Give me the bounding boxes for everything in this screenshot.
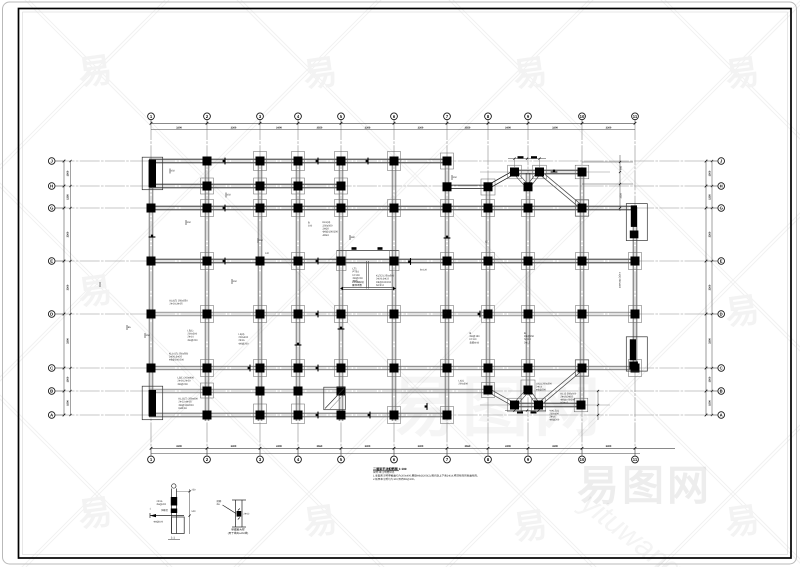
svg-text:1500: 1500	[709, 170, 712, 176]
svg-text:3300: 3300	[231, 445, 237, 448]
svg-text:1-1: 1-1	[171, 537, 175, 540]
svg-text:h50: h50	[171, 169, 176, 172]
svg-text:h80: h80	[351, 236, 356, 239]
svg-text:2400: 2400	[505, 445, 511, 448]
svg-text:3300: 3300	[365, 445, 371, 448]
svg-text:3300: 3300	[67, 284, 70, 290]
svg-text:3300: 3300	[606, 445, 612, 448]
svg-text:250: 250	[192, 489, 197, 492]
svg-text:易: 易	[723, 501, 762, 543]
svg-text:B: B	[720, 389, 723, 394]
svg-text:Ф6@200: Ф6@200	[188, 339, 199, 342]
svg-text:10: 10	[580, 457, 585, 462]
svg-text:900: 900	[620, 165, 623, 170]
svg-text:易: 易	[301, 501, 340, 543]
svg-text:A: A	[720, 413, 723, 418]
svg-text:B: B	[50, 389, 53, 394]
svg-text:1500: 1500	[620, 193, 623, 199]
svg-text:h50: h50	[146, 334, 151, 337]
svg-text:h50: h50	[227, 193, 232, 196]
svg-text:易: 易	[76, 493, 115, 535]
svg-text:11: 11	[633, 114, 638, 119]
svg-text:h50: h50	[233, 280, 238, 283]
svg-text:3300: 3300	[176, 445, 182, 448]
svg-text:N2Ф12: N2Ф12	[376, 284, 385, 287]
svg-text:加密区: 加密区	[161, 508, 169, 512]
svg-text:A: A	[50, 413, 53, 418]
svg-text:2Ф20;3Ф25: 2Ф20;3Ф25	[170, 303, 184, 306]
svg-text:(用于梁高≥450梁): (用于梁高≥450梁)	[228, 531, 249, 535]
svg-text:3300: 3300	[418, 126, 424, 129]
svg-text:1350: 1350	[709, 194, 712, 200]
svg-text:B=120: B=120	[420, 268, 428, 271]
svg-text:Ф8@100/200: Ф8@100/200	[169, 359, 184, 362]
svg-text:2400: 2400	[276, 126, 282, 129]
svg-text:2400: 2400	[276, 445, 282, 448]
svg-text:易: 易	[723, 53, 762, 95]
svg-text:Ф8@200: Ф8@200	[178, 383, 189, 386]
svg-text:Ф8@200: Ф8@200	[157, 503, 167, 506]
svg-text:L1(1) 250x400: L1(1) 250x400	[618, 272, 621, 289]
svg-text:11: 11	[633, 457, 638, 462]
svg-text:说明:未注明者详见: 说明:未注明者详见	[373, 470, 395, 474]
svg-text:C: C	[50, 366, 53, 371]
svg-text:1500: 1500	[709, 400, 712, 406]
svg-text:D: D	[50, 312, 53, 317]
svg-text:G: G	[720, 206, 723, 211]
svg-text:1350: 1350	[67, 194, 70, 200]
svg-text:2Ф12: 2Ф12	[244, 513, 250, 516]
svg-text:100: 100	[308, 225, 313, 228]
svg-text:易: 易	[723, 291, 762, 333]
svg-text:500: 500	[192, 510, 197, 513]
svg-text:3300: 3300	[709, 284, 712, 290]
svg-text:Ф8@200: Ф8@200	[239, 342, 250, 345]
svg-text:E: E	[720, 259, 723, 264]
svg-text:3300: 3300	[231, 126, 237, 129]
svg-text:h50: h50	[259, 239, 264, 242]
svg-text:2550: 2550	[465, 126, 471, 129]
svg-text:10: 10	[580, 114, 585, 119]
svg-text:1.本图未注明梁截面均为200x400,箍筋Ф8@200(2: 1.本图未注明梁截面均为200x400,箍筋Ф8@200(2),通长筋上下各2Ф…	[373, 474, 480, 478]
svg-text:2400: 2400	[505, 126, 511, 129]
svg-text:1500: 1500	[709, 376, 712, 382]
svg-text:负筋Ф10: 负筋Ф10	[470, 340, 480, 344]
svg-text:2550: 2550	[465, 445, 471, 448]
svg-text:4Ф22: 4Ф22	[323, 234, 330, 237]
svg-text:Ф6@200: Ф6@200	[536, 389, 546, 392]
svg-text:2550: 2550	[317, 445, 323, 448]
svg-text:2550: 2550	[317, 126, 323, 129]
svg-text:3300: 3300	[552, 445, 558, 448]
svg-text:120: 120	[265, 252, 270, 255]
svg-text:h50: h50	[187, 221, 192, 224]
svg-text:2.板厚未注明均为100,双向Ф8@200。: 2.板厚未注明均为100,双向Ф8@200。	[373, 477, 417, 481]
svg-text:N4Ф14: N4Ф14	[179, 407, 188, 410]
svg-text:2Ф12: 2Ф12	[524, 341, 531, 344]
svg-text:易: 易	[76, 271, 115, 313]
svg-text:3300: 3300	[365, 126, 371, 129]
svg-text:易: 易	[511, 53, 550, 95]
svg-text:3300: 3300	[709, 338, 712, 344]
svg-text:易: 易	[511, 506, 550, 548]
svg-text:3300: 3300	[67, 231, 70, 237]
svg-text:易: 易	[76, 51, 115, 93]
svg-text:3300: 3300	[552, 126, 558, 129]
svg-text:N2Ф12: N2Ф12	[561, 402, 569, 405]
svg-text:G: G	[50, 206, 53, 211]
svg-text:1500: 1500	[67, 400, 70, 406]
svg-text:1500: 1500	[67, 376, 70, 382]
svg-text:C: C	[720, 366, 723, 371]
svg-text:3300: 3300	[176, 126, 182, 129]
svg-text:楼梯详图: 楼梯详图	[352, 283, 362, 287]
svg-text:H: H	[720, 184, 723, 189]
svg-text:Ф8@200: Ф8@200	[550, 419, 560, 422]
svg-text:D: D	[720, 312, 723, 317]
svg-text:E: E	[50, 259, 53, 264]
svg-text:3300: 3300	[709, 231, 712, 237]
svg-text:3300: 3300	[418, 445, 424, 448]
svg-text:梁腰筋大样: 梁腰筋大样	[231, 528, 245, 532]
svg-text:1500: 1500	[67, 170, 70, 176]
svg-text:Ф8@100: Ф8@100	[154, 520, 164, 523]
svg-text:H: H	[50, 184, 53, 189]
svg-text:3300: 3300	[67, 338, 70, 344]
svg-text:h50: h50	[453, 176, 458, 179]
svg-text:3300: 3300	[606, 126, 612, 129]
svg-text:易: 易	[301, 53, 340, 95]
svg-text:200x300: 200x300	[459, 383, 469, 386]
